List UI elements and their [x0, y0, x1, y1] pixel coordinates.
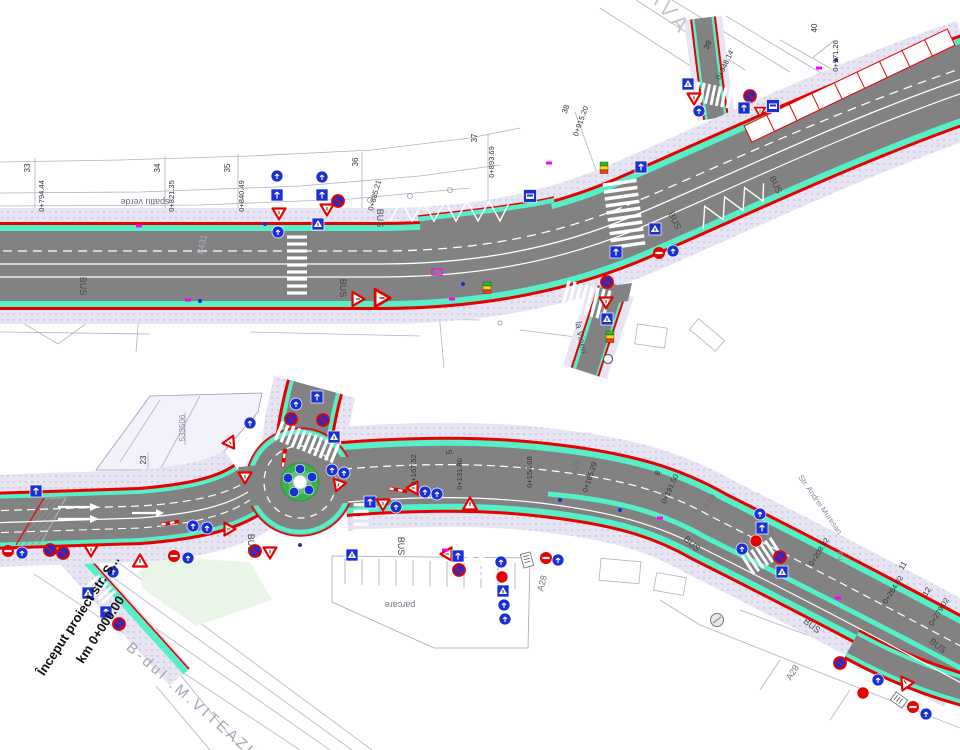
traffic-sign-noentry: [540, 552, 552, 564]
map-label: 33: [23, 163, 32, 172]
traffic-sign-sq: [271, 189, 283, 201]
traffic-sign-nostop: [601, 276, 613, 288]
traffic-sign-sq: [756, 522, 768, 534]
crosswalk: [287, 235, 307, 294]
traffic-sign-sqA: [776, 566, 788, 578]
traffic-sign-stop: [857, 687, 869, 699]
traffic-sign-noentry: [653, 247, 665, 259]
traffic-sign-blue: [498, 599, 510, 611]
traffic-sign-nostop: [774, 551, 786, 563]
traffic-sign-sqA: [328, 431, 340, 443]
traffic-sign-greycirc: [711, 614, 724, 627]
traffic-sign-bus: [767, 100, 780, 113]
traffic-sign-mag: [816, 67, 822, 70]
traffic-sign-blue: [182, 552, 194, 564]
traffic-sign-mag: [835, 597, 841, 600]
traffic-sign-stop: [750, 535, 762, 547]
traffic-sign-blue: [419, 486, 431, 498]
map-label: BUS: [396, 537, 406, 556]
traffic-sign-dot: [618, 508, 622, 512]
traffic-sign-stop: [496, 571, 508, 583]
map-label: 0+840.49: [237, 180, 246, 212]
traffic-sign-pole: [604, 355, 613, 364]
traffic-sign-mag: [546, 162, 552, 165]
traffic-sign-noentry: [168, 550, 180, 562]
map-label: 34: [153, 163, 162, 172]
traffic-sign-sq: [311, 391, 323, 403]
map-label: BUS: [338, 279, 348, 298]
traffic-sign-nostop: [332, 195, 344, 207]
traffic-sign-blue: [552, 554, 564, 566]
traffic-sign-mag: [185, 299, 191, 302]
plan-canvas: 330+794.44340+821.35350+840.49360+885.21…: [0, 0, 960, 750]
traffic-sign-blue: [338, 467, 350, 479]
traffic-sign-sqA: [312, 218, 324, 230]
central-island: [281, 463, 319, 501]
map-label: 5: [445, 449, 454, 454]
traffic-sign-blue: [290, 398, 302, 410]
traffic-sign-dot: [558, 498, 562, 502]
map-label: parcare: [385, 600, 416, 610]
map-label: BUS: [78, 277, 88, 296]
traffic-sign-blue: [920, 708, 932, 720]
map-label: 23: [139, 455, 148, 464]
traffic-sign-blue: [495, 556, 507, 568]
traffic-sign-blue: [872, 674, 884, 686]
traffic-sign-sq: [738, 102, 750, 114]
traffic-sign-blue: [431, 488, 443, 500]
traffic-sign-sq: [610, 246, 622, 258]
traffic-sign-blue: [272, 226, 284, 238]
traffic-sign-noentry: [907, 701, 919, 713]
traffic-sign-sq: [364, 496, 376, 508]
traffic-sign-dot: [198, 299, 202, 303]
traffic-sign-blue: [326, 464, 338, 476]
map-label: 0+893.69: [487, 146, 496, 178]
traffic-sign-mag: [136, 225, 142, 228]
traffic-sign-sq: [452, 550, 464, 562]
traffic-sign-mag: [442, 549, 448, 552]
traffic-sign-blue: [754, 508, 766, 520]
traffic-sign-dot: [263, 222, 267, 226]
traffic-sign-blue: [16, 547, 28, 559]
traffic-sign-dot: [461, 282, 465, 286]
traffic-sign-nostop: [744, 90, 756, 102]
traffic-sign-nostop: [285, 413, 297, 425]
traffic-sign-blue: [499, 613, 511, 625]
map-label: 0+971.26: [831, 40, 840, 72]
map-label: 0+131.80: [455, 458, 464, 490]
map-label: 0+167.52: [409, 454, 418, 486]
traffic-sign-mag: [657, 517, 663, 520]
traffic-sign-nostop: [834, 657, 846, 669]
traffic-sign-blue: [201, 522, 213, 534]
traffic-sign-sqA: [601, 313, 613, 325]
traffic-sign-sq: [635, 161, 647, 173]
traffic-sign-blue: [316, 171, 328, 183]
traffic-sign-sqA: [346, 549, 358, 561]
map-label: 40: [810, 23, 819, 32]
traffic-sign-sqA: [497, 585, 509, 597]
traffic-sign-nostop: [57, 547, 69, 559]
traffic-sign-blue: [187, 520, 199, 532]
traffic-sign-nostop: [44, 544, 56, 556]
traffic-sign-signal: [483, 282, 491, 294]
traffic-sign-blue: [667, 245, 679, 257]
map-label: BUS: [246, 534, 256, 553]
map-label: spatiu verde: [120, 197, 169, 207]
traffic-sign-sqA: [649, 223, 661, 235]
traffic-sign-nostop: [453, 564, 465, 576]
map-label: 36: [351, 157, 360, 166]
map-label: 2: [837, 549, 844, 563]
map-label: 0+794.44: [37, 180, 46, 212]
traffic-sign-blue: [736, 543, 748, 555]
traffic-sign-blue: [244, 417, 256, 429]
traffic-sign-blue: [390, 501, 402, 513]
map-label: 533506: [178, 414, 187, 441]
traffic-sign-blue: [693, 105, 705, 117]
traffic-sign-sqA: [682, 78, 694, 90]
traffic-sign-mag: [449, 298, 455, 301]
traffic-sign-sq: [316, 189, 328, 201]
map-label: 0+154.08: [525, 456, 534, 488]
traffic-sign-blue: [271, 170, 283, 182]
map-label: BUS: [375, 209, 385, 228]
traffic-sign-nostop: [317, 414, 329, 426]
map-label: 37: [470, 133, 479, 142]
traffic-sign-signal: [606, 331, 614, 343]
traffic-sign-bus: [524, 190, 537, 203]
traffic-sign-noentry: [2, 545, 14, 557]
map-label: 35: [223, 163, 232, 172]
traffic-sign-signal: [600, 162, 608, 174]
site-plan-drawing: 330+794.44340+821.35350+840.49360+885.21…: [0, 0, 960, 750]
traffic-sign-sq: [30, 485, 42, 497]
traffic-sign-dot: [298, 543, 302, 547]
